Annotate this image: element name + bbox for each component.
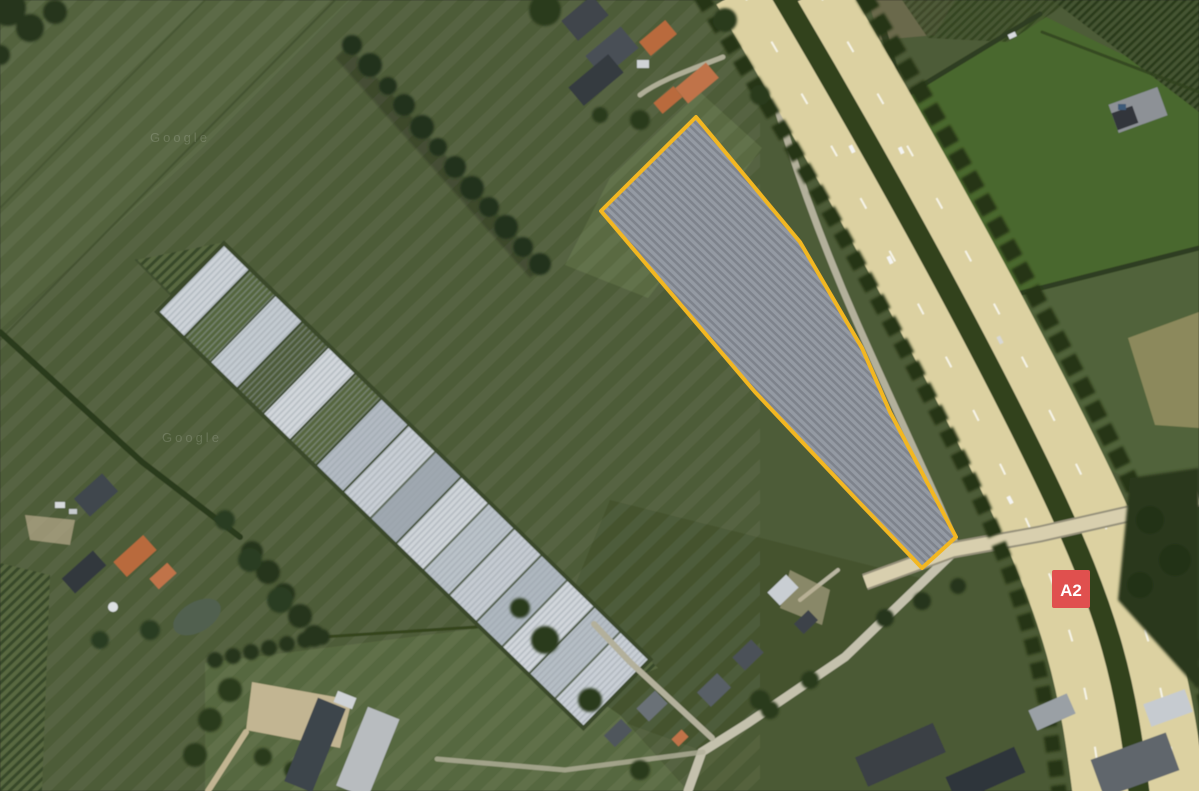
a2-badge-label: A2 bbox=[1060, 581, 1082, 600]
vineyard-left-strip bbox=[0, 563, 50, 791]
terrain-layer bbox=[0, 0, 1199, 791]
google-watermark: Google bbox=[150, 130, 210, 145]
trampoline bbox=[108, 602, 118, 612]
google-watermark: Google bbox=[162, 430, 222, 445]
satellite-map[interactable]: A2 Google Google bbox=[0, 0, 1199, 791]
a2-badge: A2 bbox=[1052, 570, 1090, 608]
map-canvas: A2 Google Google bbox=[0, 0, 1199, 791]
